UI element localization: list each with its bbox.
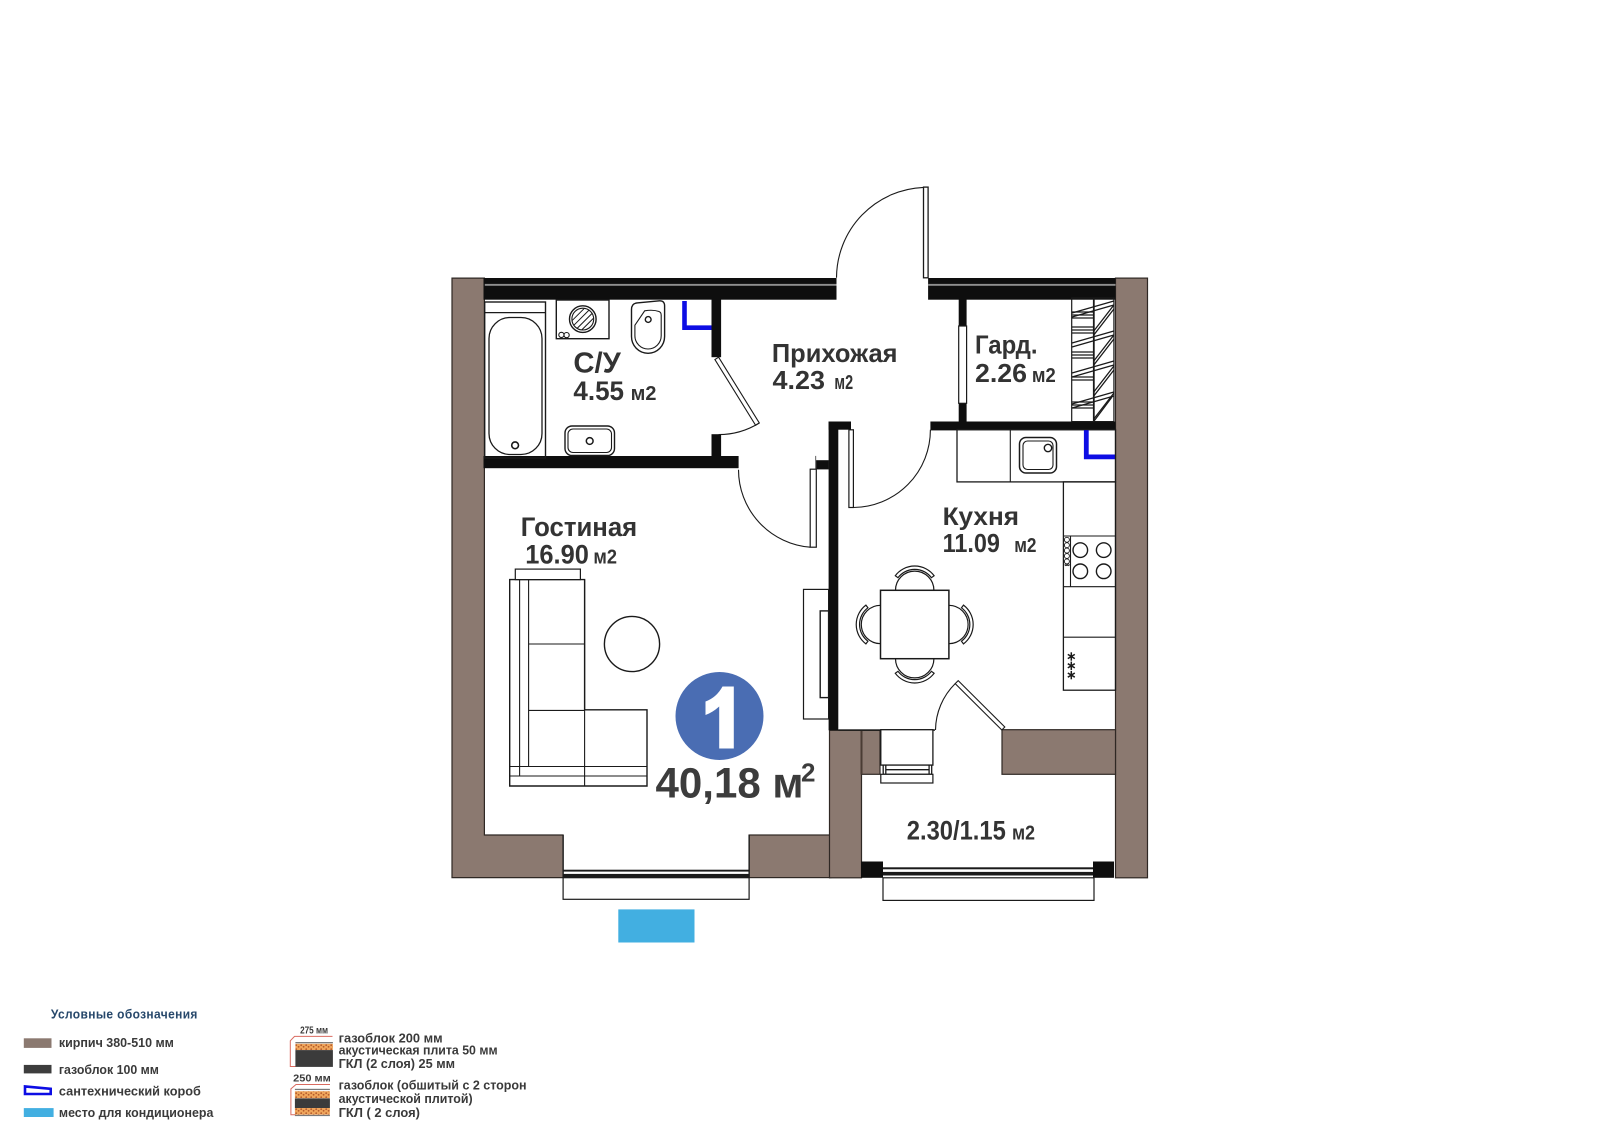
svg-text:кирпич 380-510 мм: кирпич 380-510 мм: [59, 1035, 174, 1050]
svg-text:газоблок 100 мм: газоблок 100 мм: [59, 1062, 159, 1077]
svg-text:м2: м2: [834, 372, 853, 394]
svg-text:место для кондиционера: место для кондиционера: [59, 1105, 214, 1120]
svg-text:40,18 м: 40,18 м: [656, 760, 804, 808]
svg-text:2.30/1.15: 2.30/1.15: [907, 816, 1006, 846]
svg-text:4.23: 4.23: [773, 365, 826, 395]
svg-text:сантехнический короб: сантехнический короб: [59, 1083, 201, 1098]
svg-text:м2: м2: [1014, 535, 1036, 557]
svg-text:ГКЛ ( 2 слоя): ГКЛ ( 2 слоя): [339, 1105, 420, 1120]
svg-text:м2: м2: [631, 383, 657, 405]
svg-text:2: 2: [801, 757, 815, 787]
svg-text:11.09: 11.09: [943, 528, 1000, 558]
svg-text:Прихожая: Прихожая: [772, 338, 898, 368]
svg-text:ГКЛ (2 слоя) 25 мм: ГКЛ (2 слоя) 25 мм: [339, 1056, 455, 1071]
svg-text:250 мм: 250 мм: [293, 1072, 331, 1084]
svg-text:16.90: 16.90: [525, 540, 589, 570]
svg-text:Гостиная: Гостиная: [521, 512, 637, 542]
svg-text:Гард.: Гард.: [975, 330, 1038, 360]
svg-text:м2: м2: [1012, 823, 1035, 845]
svg-text:м2: м2: [593, 547, 617, 569]
svg-text:275 мм: 275 мм: [300, 1026, 328, 1037]
svg-text:4.55: 4.55: [573, 376, 624, 406]
svg-text:С/У: С/У: [573, 347, 621, 379]
svg-text:Кухня: Кухня: [943, 503, 1019, 531]
svg-text:2.26: 2.26: [975, 358, 1027, 388]
svg-text:м2: м2: [1032, 365, 1056, 387]
svg-text:Условные обозначения: Условные обозначения: [51, 1006, 198, 1021]
